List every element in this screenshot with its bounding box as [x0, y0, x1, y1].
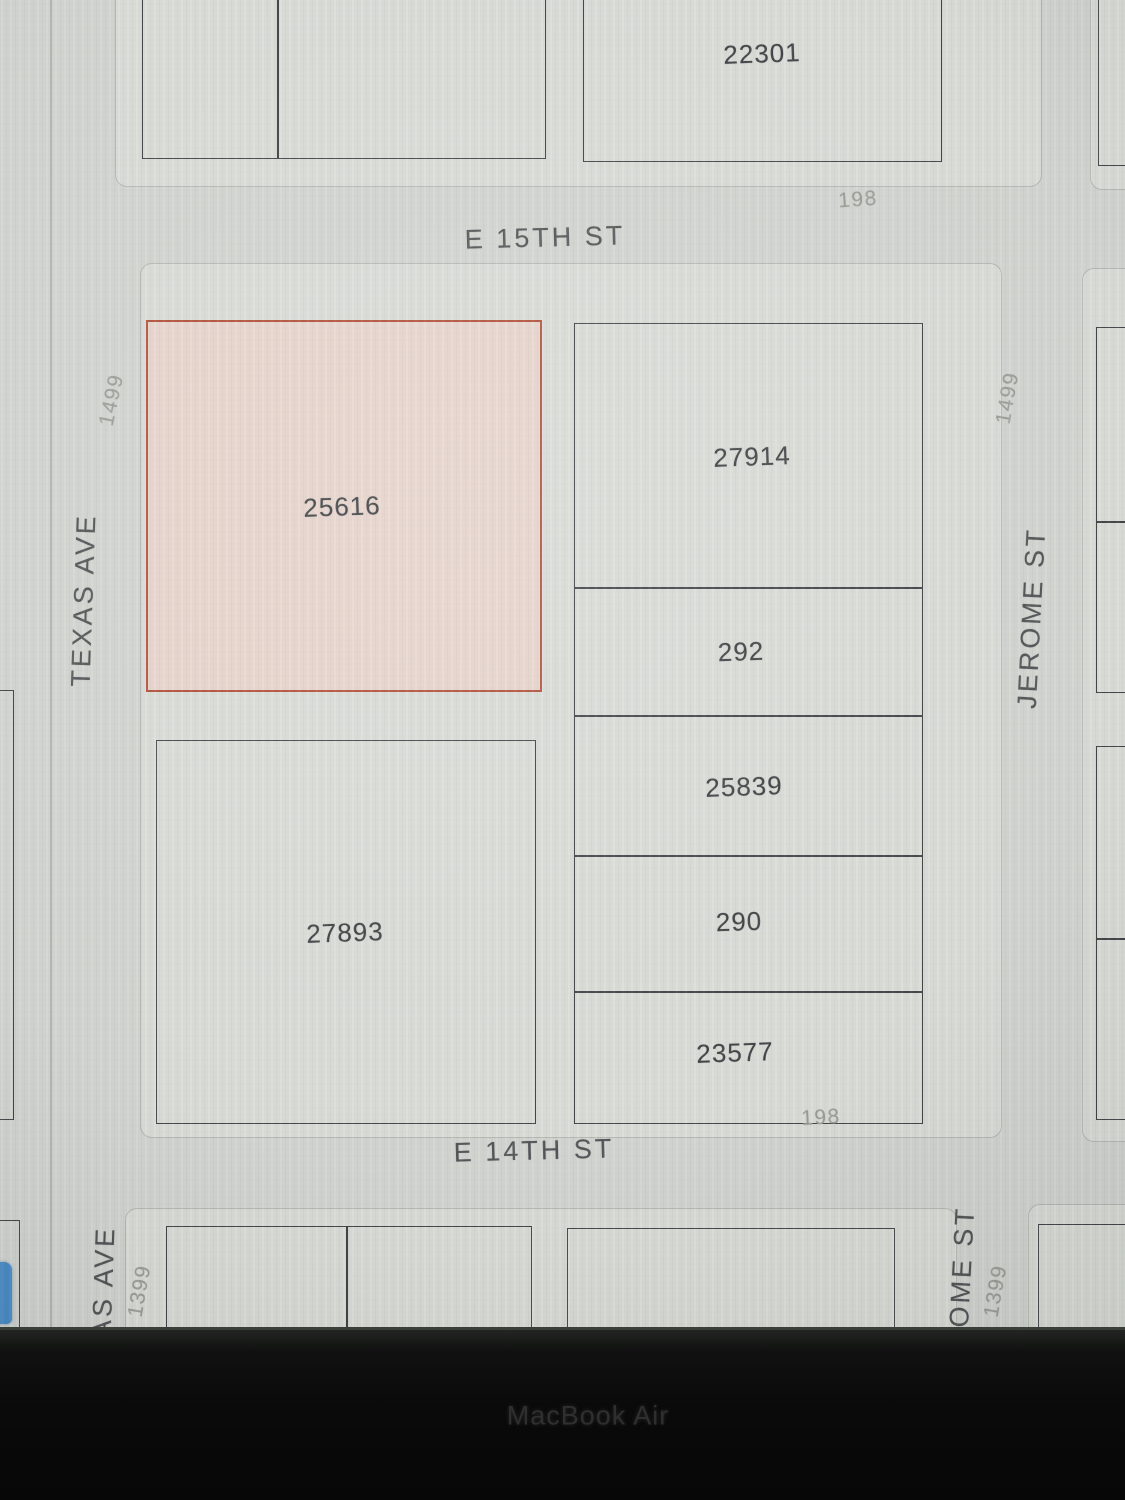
parcel-west-sliver[interactable] — [0, 690, 14, 1120]
range-label-1399-east: 1399 — [980, 1263, 1013, 1319]
parcel-divider — [346, 1227, 348, 1331]
macbook-air-logo: MacBook Air — [507, 1401, 670, 1432]
parcel-divider — [277, 0, 279, 158]
range-label-1499-west: 1499 — [95, 372, 129, 429]
blue-ui-fragment — [0, 1262, 12, 1324]
parcel-label-25616: 25616 — [303, 490, 381, 524]
map-canvas[interactable]: 22301 25616 27914 292 25839 290 23577 27… — [0, 0, 1125, 1331]
parcel-south-middle[interactable] — [567, 1228, 895, 1331]
street-label-e-15th-st: E 15TH ST — [464, 220, 625, 255]
parcel-divider — [575, 855, 922, 857]
map-viewport: 22301 25616 27914 292 25839 290 23577 27… — [0, 0, 1125, 1331]
parcel-south-pair[interactable] — [166, 1226, 532, 1331]
parcel-label-290: 290 — [715, 906, 762, 939]
parcel-jerome-east-1[interactable] — [1096, 327, 1125, 523]
parcel-label-22301: 22301 — [723, 37, 801, 71]
street-label-texas-ave: TEXAS AVE — [65, 513, 102, 688]
block-number-198-north: 198 — [837, 187, 878, 214]
parcel-label-25839: 25839 — [705, 770, 783, 804]
parcel-label-27914: 27914 — [713, 440, 791, 474]
block-number-198-south: 198 — [801, 1105, 842, 1131]
parcel-divider — [575, 587, 922, 589]
parcel-jerome-east-2[interactable] — [1096, 521, 1125, 693]
parcel-jerome-east-3[interactable] — [1096, 746, 1125, 940]
parcel-divider — [575, 991, 922, 993]
macbook-screen-photo: 22301 25616 27914 292 25839 290 23577 27… — [0, 0, 1125, 1500]
parcel-label-292: 292 — [717, 636, 764, 669]
street-label-texas-ave-clipped: AS AVE — [87, 1225, 122, 1331]
parcel-southeast-partial[interactable] — [1038, 1224, 1125, 1331]
street-label-jerome-st-clipped: ROME ST — [943, 1205, 981, 1331]
parcel-label-27893: 27893 — [306, 916, 384, 950]
street-label-jerome-st: JEROME ST — [1012, 527, 1052, 710]
parcel-northeast-partial[interactable] — [1098, 0, 1125, 166]
texas-ave-west-edge-line — [50, 0, 52, 1331]
parcel-north-pair[interactable] — [142, 0, 546, 159]
parcel-label-23577: 23577 — [696, 1036, 774, 1070]
parcel-jerome-east-4[interactable] — [1096, 938, 1125, 1120]
street-label-e-14th-st: E 14TH ST — [453, 1133, 614, 1168]
parcel-22301[interactable] — [583, 0, 942, 162]
parcel-divider — [575, 715, 922, 717]
